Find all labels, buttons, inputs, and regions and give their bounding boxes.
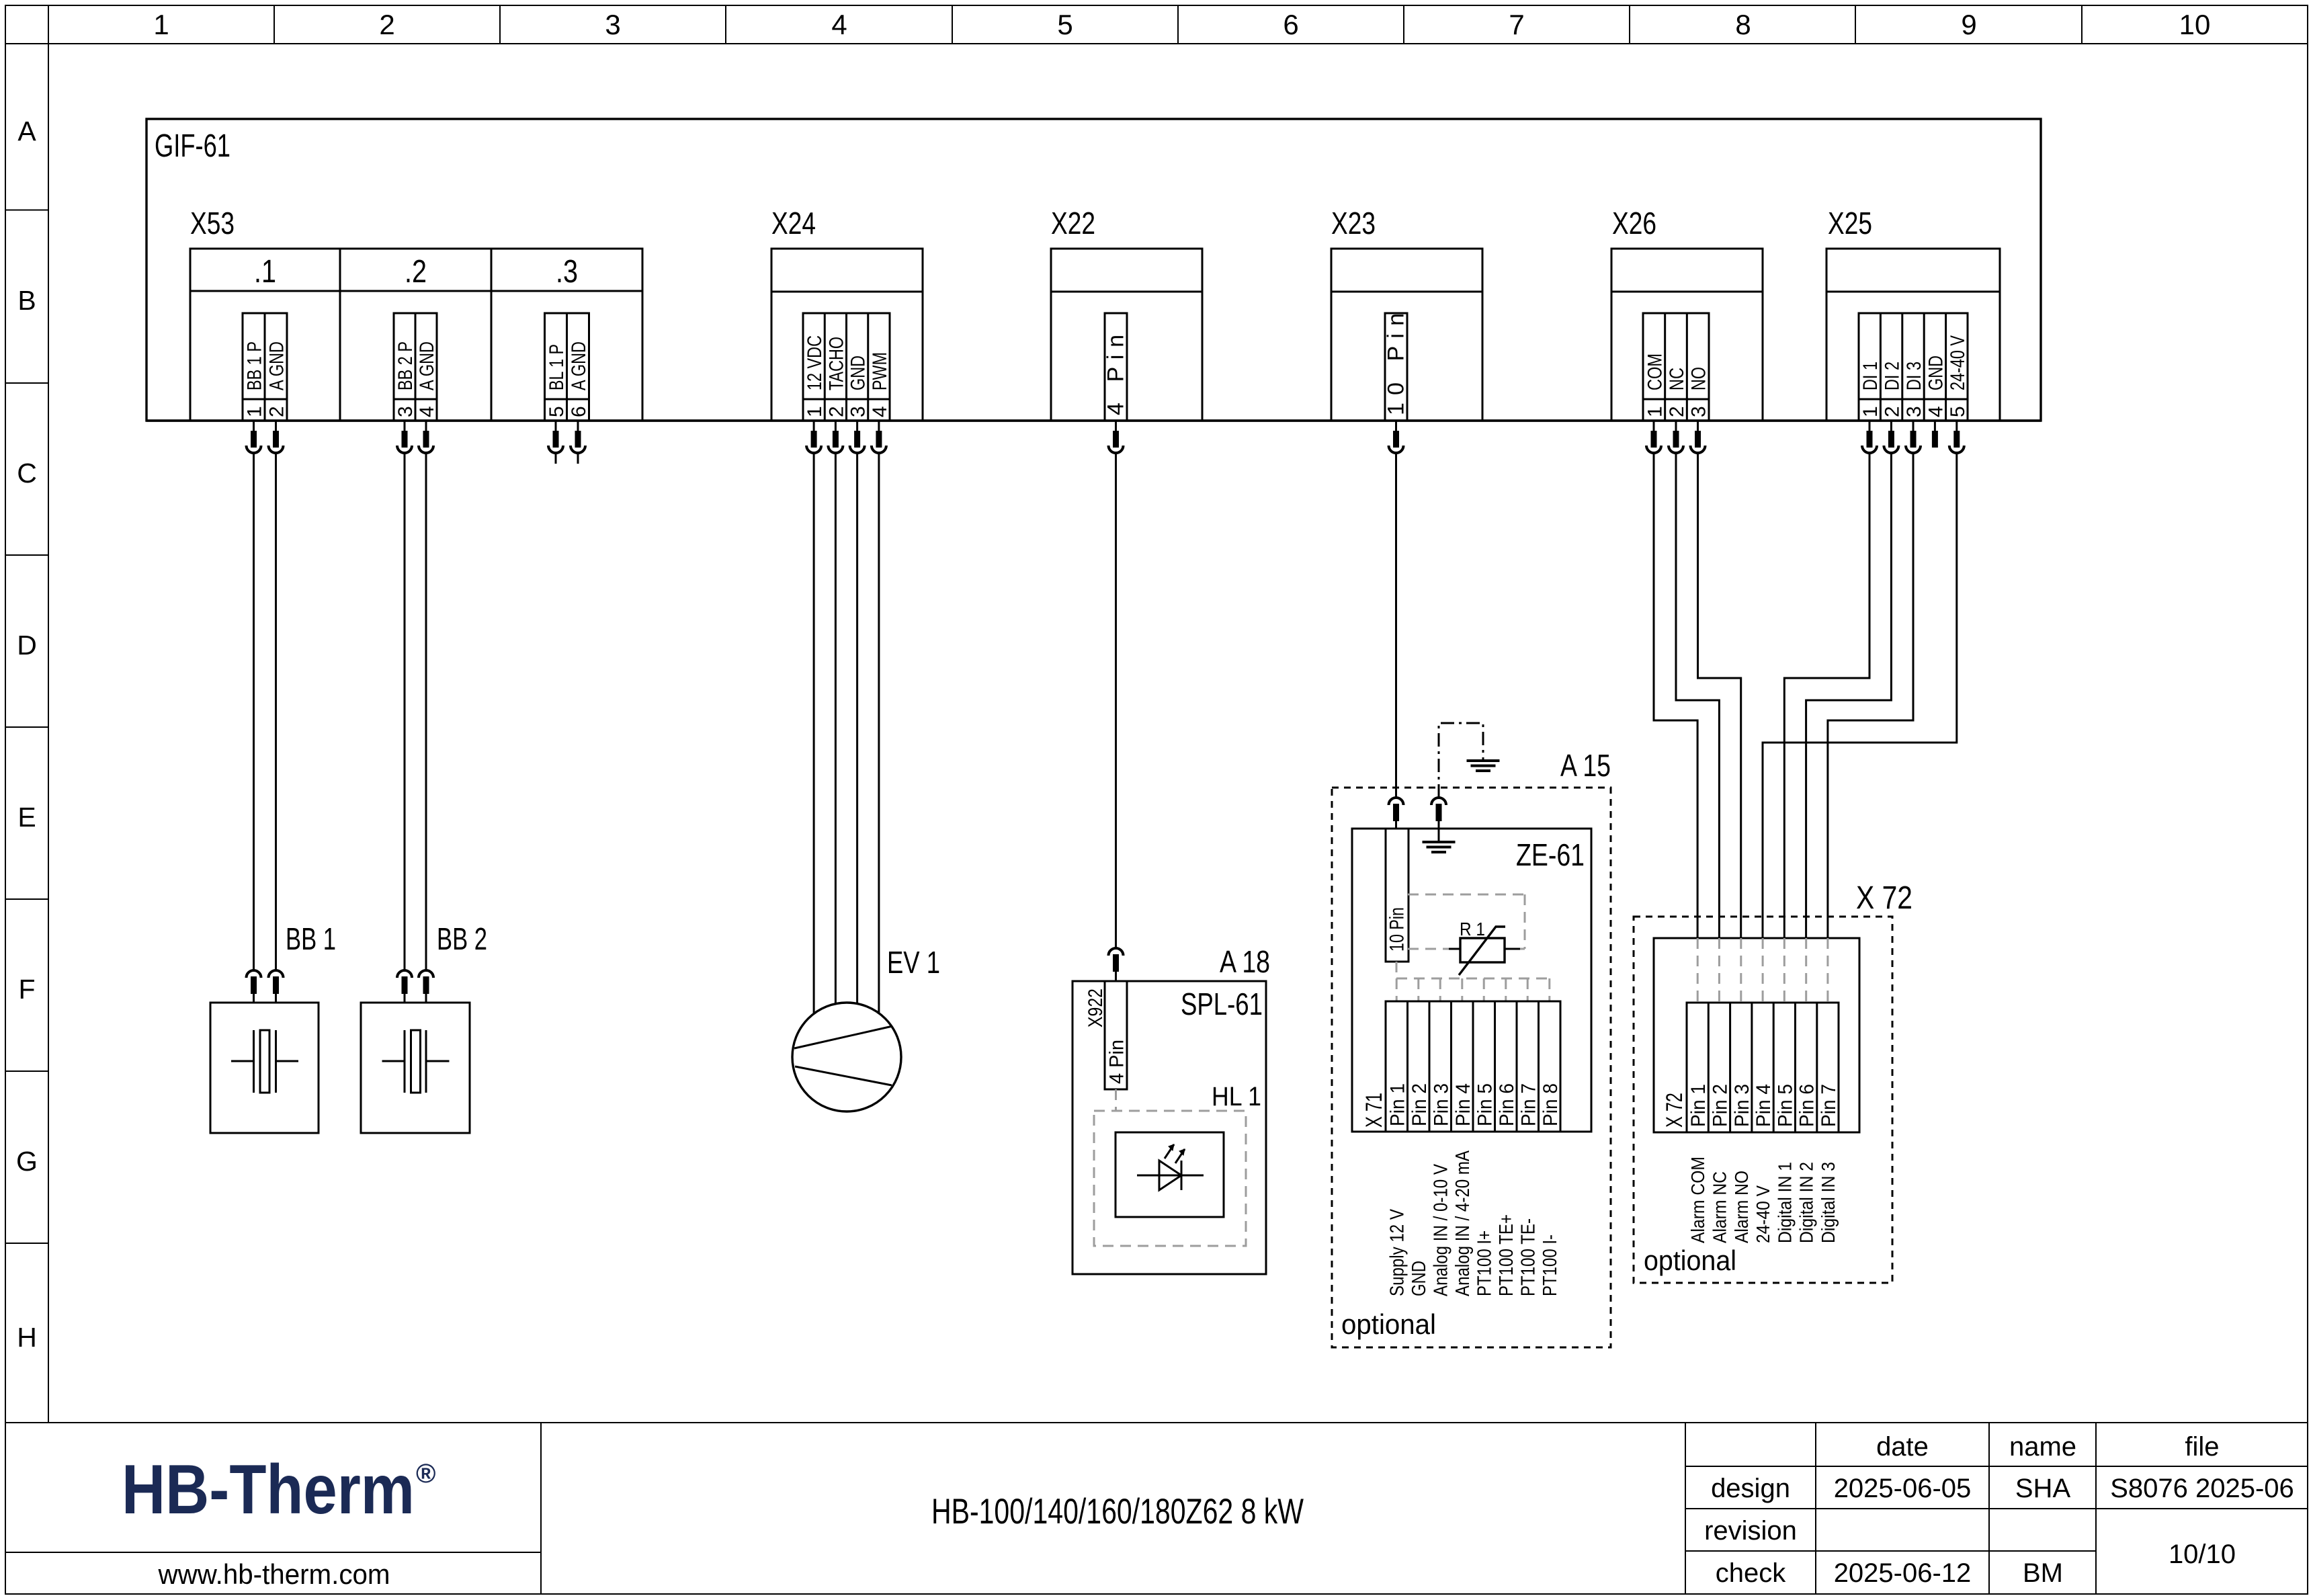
svg-text:4 Pin: 4 Pin xyxy=(1106,1040,1128,1084)
svg-text:BB 2 P: BB 2 P xyxy=(394,341,417,390)
svg-text:PT100 TE+: PT100 TE+ xyxy=(1496,1214,1517,1296)
svg-text:optional: optional xyxy=(1644,1245,1736,1276)
svg-text:2: 2 xyxy=(1882,406,1904,417)
svg-text:X24: X24 xyxy=(771,206,816,241)
svg-text:Alarm NO: Alarm NO xyxy=(1731,1171,1752,1243)
svg-text:10 Pin: 10 Pin xyxy=(1386,907,1408,952)
svg-text:Pin 4: Pin 4 xyxy=(1753,1084,1775,1127)
svg-text:check: check xyxy=(1716,1558,1786,1588)
svg-text:Analog IN / 4-20 mA: Analog IN / 4-20 mA xyxy=(1452,1150,1474,1296)
svg-text:1: 1 xyxy=(1644,406,1666,417)
svg-text:3: 3 xyxy=(1688,406,1710,417)
svg-text:GND: GND xyxy=(1925,355,1947,390)
svg-text:BB 1 P: BB 1 P xyxy=(244,341,266,390)
svg-text:NC: NC xyxy=(1666,368,1688,390)
svg-text:E: E xyxy=(17,802,36,833)
svg-text:10: 10 xyxy=(2179,9,2211,40)
svg-text:24-40 V: 24-40 V xyxy=(1753,1185,1773,1243)
svg-text:F: F xyxy=(18,974,35,1005)
svg-text:.3: .3 xyxy=(556,254,578,290)
svg-text:revision: revision xyxy=(1704,1516,1797,1546)
svg-text:2: 2 xyxy=(266,406,288,417)
svg-text:Pin 6: Pin 6 xyxy=(1496,1083,1518,1126)
svg-text:B: B xyxy=(17,285,36,316)
svg-text:EV 1: EV 1 xyxy=(887,945,940,980)
svg-text:PT100 I+: PT100 I+ xyxy=(1474,1230,1495,1296)
svg-text:12 VDC: 12 VDC xyxy=(804,335,826,390)
svg-text:Alarm NC: Alarm NC xyxy=(1709,1171,1730,1243)
svg-text:3: 3 xyxy=(847,406,870,417)
svg-text:BM: BM xyxy=(2023,1558,2063,1588)
svg-text:S8076 2025-06: S8076 2025-06 xyxy=(2110,1474,2294,1503)
svg-text:Pin 8: Pin 8 xyxy=(1540,1083,1562,1126)
svg-text:Pin 7: Pin 7 xyxy=(1517,1083,1540,1126)
svg-text:TACHO: TACHO xyxy=(825,337,847,390)
svg-text:GIF-61: GIF-61 xyxy=(155,128,230,164)
svg-text:8: 8 xyxy=(1735,9,1751,40)
svg-text:5: 5 xyxy=(1057,9,1073,40)
svg-text:X25: X25 xyxy=(1828,206,1872,241)
svg-text:6: 6 xyxy=(568,406,590,417)
svg-text:BL 1 P: BL 1 P xyxy=(546,344,568,390)
svg-text:Pin 7: Pin 7 xyxy=(1818,1084,1840,1127)
svg-text:Analog IN / 0-10 V: Analog IN / 0-10 V xyxy=(1430,1163,1452,1296)
svg-text:X26: X26 xyxy=(1612,206,1656,241)
svg-text:Pin 6: Pin 6 xyxy=(1796,1084,1818,1127)
svg-text:.1: .1 xyxy=(254,254,276,290)
svg-text:Pin 3: Pin 3 xyxy=(1430,1083,1452,1126)
svg-text:DI 2: DI 2 xyxy=(1882,362,1904,390)
svg-text:H: H xyxy=(17,1322,37,1353)
svg-text:date: date xyxy=(1876,1432,1929,1462)
svg-text:A 18: A 18 xyxy=(1220,944,1270,979)
svg-text:Pin 5: Pin 5 xyxy=(1774,1084,1796,1127)
svg-text:DI 1: DI 1 xyxy=(1859,362,1882,390)
svg-text:10/10: 10/10 xyxy=(2169,1540,2236,1569)
svg-text:Pin 1: Pin 1 xyxy=(1687,1084,1710,1127)
svg-text:Pin 2: Pin 2 xyxy=(1709,1084,1731,1127)
svg-text:SHA: SHA xyxy=(2015,1474,2071,1503)
svg-text:G: G xyxy=(16,1146,38,1177)
svg-text:Pin 3: Pin 3 xyxy=(1731,1084,1753,1127)
svg-text:HL 1: HL 1 xyxy=(1212,1082,1261,1111)
svg-text:A 15: A 15 xyxy=(1560,748,1611,783)
svg-text:6: 6 xyxy=(1283,9,1298,40)
svg-text:GND: GND xyxy=(1408,1261,1430,1296)
svg-text:SPL-61: SPL-61 xyxy=(1181,986,1263,1021)
svg-text:Digital IN 1: Digital IN 1 xyxy=(1774,1162,1795,1243)
svg-text:BB 2: BB 2 xyxy=(437,921,487,956)
svg-text:1: 1 xyxy=(804,406,826,417)
svg-text:D: D xyxy=(17,630,37,661)
svg-text:5: 5 xyxy=(1947,406,1969,417)
svg-text:HB-100/140/160/180Z62 8 kW: HB-100/140/160/180Z62 8 kW xyxy=(931,1492,1304,1531)
svg-text:Digital IN 2: Digital IN 2 xyxy=(1796,1162,1817,1243)
svg-text:9: 9 xyxy=(1961,9,1976,40)
svg-text:Pin 1: Pin 1 xyxy=(1386,1083,1408,1126)
svg-text:A: A xyxy=(17,116,36,146)
svg-text:3: 3 xyxy=(605,9,620,40)
svg-text:PWM: PWM xyxy=(869,352,891,390)
svg-text:Pin 2: Pin 2 xyxy=(1408,1083,1431,1126)
svg-text:PT100 TE-: PT100 TE- xyxy=(1517,1218,1539,1296)
svg-text:X22: X22 xyxy=(1051,206,1095,241)
svg-text:Digital IN 3: Digital IN 3 xyxy=(1818,1162,1839,1243)
svg-text:.2: .2 xyxy=(405,254,427,290)
svg-text:2: 2 xyxy=(379,9,394,40)
svg-text:24-40 V: 24-40 V xyxy=(1947,335,1969,390)
svg-text:1: 1 xyxy=(244,406,266,417)
svg-text:4 Pin: 4 Pin xyxy=(1103,335,1129,415)
svg-text:X 72: X 72 xyxy=(1662,1093,1687,1128)
svg-text:2025-06-05: 2025-06-05 xyxy=(1834,1474,1972,1503)
svg-text:4: 4 xyxy=(831,9,847,40)
svg-text:A GND: A GND xyxy=(416,341,438,390)
svg-text:X 72: X 72 xyxy=(1856,880,1912,916)
svg-text:4: 4 xyxy=(869,406,891,417)
svg-text:5: 5 xyxy=(546,406,568,417)
svg-text:X 71: X 71 xyxy=(1361,1093,1387,1128)
svg-text:4: 4 xyxy=(416,406,438,417)
svg-text:R 1: R 1 xyxy=(1460,919,1485,939)
svg-text:1: 1 xyxy=(1859,406,1882,417)
svg-text:NO: NO xyxy=(1688,367,1710,390)
svg-text:Pin 5: Pin 5 xyxy=(1474,1083,1496,1126)
svg-text:A GND: A GND xyxy=(266,341,288,390)
svg-text:2025-06-12: 2025-06-12 xyxy=(1834,1558,1972,1588)
svg-text:7: 7 xyxy=(1509,9,1524,40)
svg-text:4: 4 xyxy=(1925,406,1947,417)
svg-text:file: file xyxy=(2185,1432,2219,1462)
svg-text:3: 3 xyxy=(1903,406,1925,417)
svg-text:2: 2 xyxy=(825,406,847,417)
svg-text:HB-Therm: HB-Therm xyxy=(122,1451,415,1529)
svg-text:C: C xyxy=(17,458,37,489)
svg-text:name: name xyxy=(2009,1432,2076,1462)
svg-text:3: 3 xyxy=(394,406,417,417)
svg-text:A GND: A GND xyxy=(568,341,590,390)
svg-text:2: 2 xyxy=(1666,406,1688,417)
svg-text:PT100 I-: PT100 I- xyxy=(1540,1234,1561,1296)
svg-text:®: ® xyxy=(416,1459,435,1488)
svg-text:ZE-61: ZE-61 xyxy=(1516,837,1585,872)
svg-text:COM: COM xyxy=(1644,353,1666,390)
svg-text:Supply 12 V: Supply 12 V xyxy=(1386,1208,1408,1296)
svg-text:DI 3: DI 3 xyxy=(1903,362,1925,390)
svg-text:X53: X53 xyxy=(190,206,235,241)
svg-text:X23: X23 xyxy=(1331,206,1376,241)
svg-text:BB 1: BB 1 xyxy=(286,921,336,956)
svg-text:optional: optional xyxy=(1341,1308,1436,1340)
svg-text:Alarm COM: Alarm COM xyxy=(1687,1157,1708,1243)
svg-text:X922: X922 xyxy=(1085,989,1107,1027)
svg-text:design: design xyxy=(1711,1474,1790,1503)
svg-text:1: 1 xyxy=(153,9,169,40)
svg-text:GND: GND xyxy=(847,355,870,390)
svg-text:Pin 4: Pin 4 xyxy=(1452,1083,1474,1126)
svg-text:www.hb-therm.com: www.hb-therm.com xyxy=(158,1558,390,1590)
